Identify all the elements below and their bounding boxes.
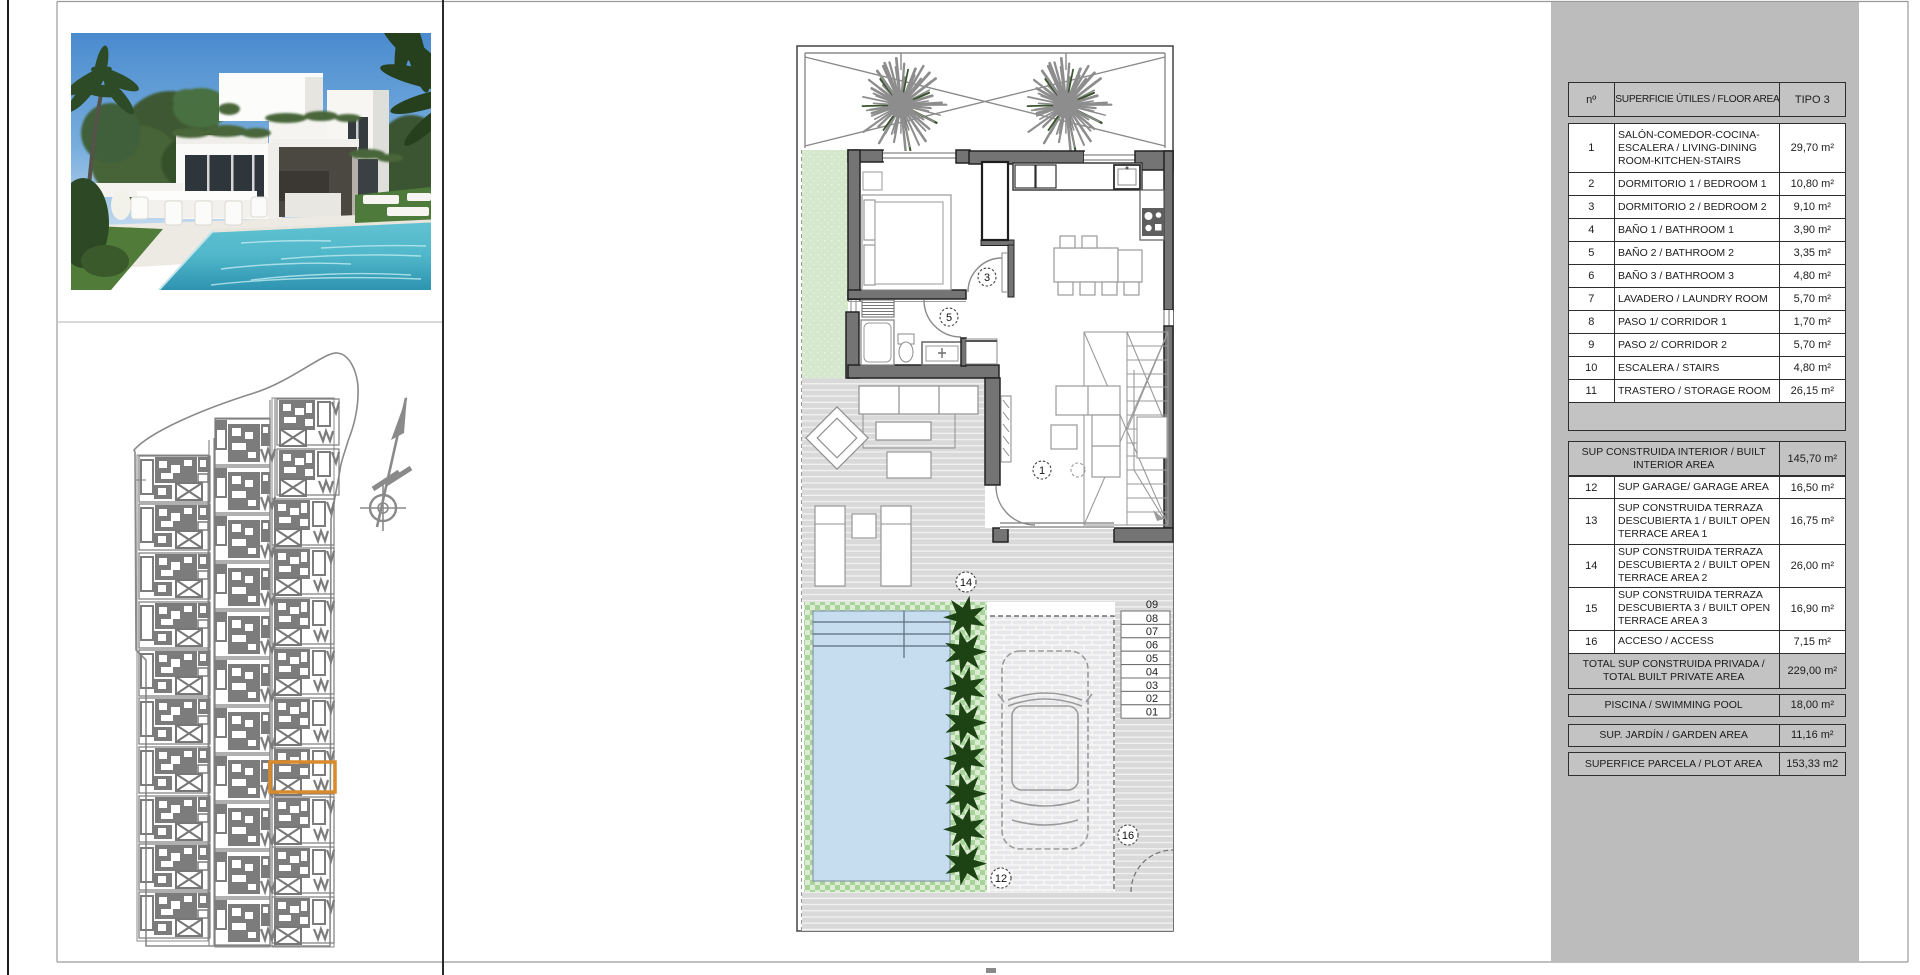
svg-text:12: 12 xyxy=(995,873,1007,885)
svg-text:08: 08 xyxy=(1146,613,1158,625)
svg-text:1: 1 xyxy=(1039,465,1045,477)
svg-text:3: 3 xyxy=(984,272,990,284)
svg-text:5: 5 xyxy=(946,312,952,324)
svg-text:16: 16 xyxy=(1122,830,1134,842)
svg-text:06: 06 xyxy=(1146,640,1158,652)
svg-text:05: 05 xyxy=(1146,653,1158,665)
svg-text:01: 01 xyxy=(1146,707,1158,719)
svg-text:07: 07 xyxy=(1146,626,1158,638)
svg-text:02: 02 xyxy=(1146,693,1158,705)
svg-text:14: 14 xyxy=(960,577,972,589)
svg-text:04: 04 xyxy=(1146,666,1158,678)
svg-text:09: 09 xyxy=(1146,599,1158,611)
svg-text:03: 03 xyxy=(1146,680,1158,692)
